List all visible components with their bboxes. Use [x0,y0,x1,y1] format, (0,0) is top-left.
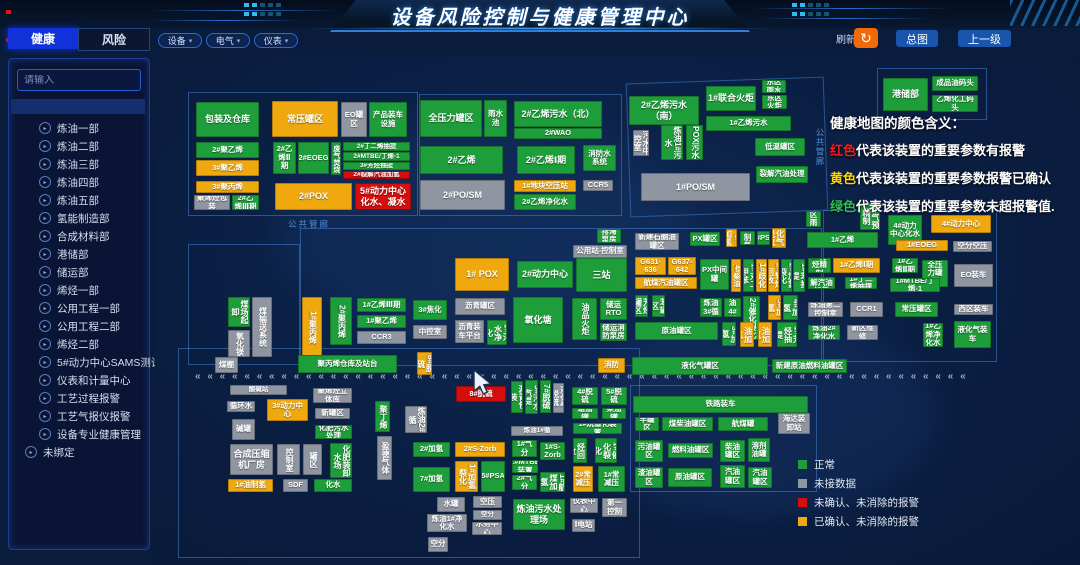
map-block[interactable]: 新建原油燃料油罐区 [772,359,847,373]
map-block[interactable]: 公用站-控制室 [573,245,627,258]
sidebar-item-label: 设备专业健康管理 [57,427,141,442]
map-block[interactable]: 1#EOEG [896,240,948,251]
color-description: 代表该装置的重要参数未超报警值. [856,199,1055,214]
mouse-cursor [472,370,496,396]
status-legend-row: 正常 [798,455,919,474]
map-block[interactable]: 3#动力中心 [267,399,308,421]
map-block[interactable]: CCR1 [850,302,883,317]
dropdown-1[interactable]: 电气▾ [206,33,250,48]
sidebar-item[interactable]: ▸炼油四部 [9,173,149,191]
map-block[interactable]: EO罐区 [341,102,367,137]
app-window: 设备风险控制与健康管理中心 健康风险 设备▾电气▾仪表▾ 刷新 ↻ 总图上一级 … [0,0,1080,565]
road-label: 公共管廊 [288,218,330,230]
map-block[interactable]: 3#污水汽提 [525,380,538,414]
map-block[interactable]: 1#丁二烯抽提 [845,277,877,289]
expand-icon[interactable]: ▸ [39,266,51,278]
expand-icon[interactable]: ▸ [39,338,51,350]
sidebar-item[interactable]: ▸储运部 [9,263,149,281]
map-block[interactable]: 2#加氢裂化 [781,259,792,292]
header-deco-dashes [792,12,829,16]
map-block[interactable]: 空分 [428,537,448,552]
map-block[interactable]: 1#加氢裂化 [455,461,478,492]
expand-icon[interactable]: ▸ [39,302,51,314]
map-block[interactable]: 1#MTBE/丁烯-1 [890,278,940,292]
map-block[interactable]: 低温罐区 [755,138,805,156]
map-block[interactable]: 1# POX [455,258,509,291]
map-block[interactable]: 东区雨水 [762,80,786,93]
map-block[interactable]: 1#乙烯 [807,232,878,248]
map-block[interactable]: 2#EOEG [298,142,329,174]
map-block[interactable]: 2#S-Zorb [455,442,505,457]
map-block[interactable]: 空分空压 [953,241,992,252]
sidebar-item-label: 公用工程二部 [57,319,120,334]
map-block[interactable]: 废气焚烧 [331,142,341,175]
map-block[interactable]: 蜡油罐 [572,408,598,419]
sidebar-item-label: 5#动力中心SAMS测试 [57,355,161,370]
map-block[interactable]: 2#轻烃回收 [768,259,779,292]
map-block[interactable]: 3#蜡油加氢 [740,322,754,347]
map-block[interactable]: 7#加氢 [413,467,450,492]
map-block[interactable]: 渣油罐区 [635,467,663,488]
map-block[interactable]: 1#聚丙烯 [302,297,322,357]
map-block[interactable]: 炼油1#污水 [661,125,683,160]
map-block[interactable]: 柴油罐 [602,408,626,419]
map-block[interactable]: 乙烯化工码头 [932,95,978,112]
map-block[interactable]: 原油罐区 [635,322,718,340]
map-block[interactable]: 1#对二甲苯 [743,259,754,292]
map-block[interactable]: 5#PSA [481,461,505,492]
expand-icon[interactable]: ▸ [39,176,51,188]
map-block[interactable]: 5#加氢 [768,295,781,320]
expand-icon[interactable]: ▸ [25,446,37,458]
map-block[interactable]: 1#联合火炬 [706,86,756,111]
map-block[interactable]: 酸碱站 [230,385,287,395]
color-legend-line: 绿色代表该装置的重要参数未超报警值. [830,196,1076,215]
map-block[interactable]: 1#PO/SM [641,173,750,201]
search-box[interactable] [17,69,141,91]
map-block[interactable]: 化肥污水处理 [315,425,352,439]
sidebar-item[interactable]: ▸公用工程二部 [9,317,149,335]
tab-health[interactable]: 健康 [8,28,78,49]
map-block[interactable]: 成品油码头 [932,76,978,91]
map-block[interactable]: Ⅰ电站 [572,519,595,532]
sidebar-item[interactable]: ▸合成材料部 [9,227,149,245]
map-block[interactable]: PX中间罐 [700,259,729,290]
sidebar-item[interactable]: ▸工艺气报仪报警 [9,407,149,425]
sidebar-item[interactable]: ▸氢能制造部 [9,209,149,227]
map-block[interactable]: 3#柴油加氢 [758,322,772,347]
map-block[interactable]: 罐区 [303,444,322,475]
org-tree: ▸炼油一部▸炼油二部▸炼油三部▸炼油四部▸炼油五部▸氢能制造部▸合成材料部▸港储… [9,119,149,461]
map-block[interactable]: 1#乙烯净化水 [923,323,943,347]
header-deco-line [150,20,300,21]
map-block[interactable]: 1#地块空压站 [514,180,576,192]
map-block[interactable]: 1#河水净化 [487,320,507,345]
expand-icon[interactable]: ▸ [39,356,51,368]
map-block[interactable]: 苯罐区 [652,295,665,317]
map-block[interactable]: 包装及仓库 [196,102,259,137]
map-block[interactable]: 液化气罐区 [632,357,768,375]
map-block[interactable]: 储运消防泵房 [600,323,627,341]
map-block[interactable]: 常压罐区 [272,101,338,137]
map-block[interactable]: 水罐 [437,497,465,512]
status-legend-row: 未确认、未消除的报警 [798,493,919,512]
map-block[interactable]: 1#常减压 [598,466,625,492]
map-block[interactable]: 化肥装卸水场 [330,443,352,478]
legend-swatch [798,479,807,488]
map-block[interactable]: G637-642 [668,257,696,275]
map-block[interactable]: 聚烯烃立体库 [313,388,352,403]
map-block[interactable]: 沥青装车平台 [455,320,484,343]
map-block[interactable]: 聚烯烃包装 [194,195,230,210]
map-block[interactable]: G631-636 [635,257,666,275]
map-block[interactable]: 化水 [314,479,352,492]
map-block[interactable]: 消防水系统 [583,145,616,171]
sidebar-item-label: 烯烃二部 [57,337,99,352]
map-block[interactable]: 三站 [576,258,627,292]
road-label: 公共管廊 [814,128,826,166]
sidebar-item[interactable]: ▸5#动力中心SAMS测试 [9,353,149,371]
map-block[interactable]: 溶剂油罐 [748,438,770,462]
expand-icon[interactable]: ▸ [39,122,51,134]
map-block[interactable]: 1#S-Zorb [540,442,565,460]
map-block[interactable]: 柴油罐区 [720,440,745,462]
map-block[interactable]: 炼油3#循 [700,298,722,317]
expand-icon[interactable]: ▸ [39,392,51,404]
map-block[interactable]: 1#PSA [757,231,770,245]
map-block[interactable]: 1#航煤加氢 [540,472,565,492]
color-description: 代表该装置的重要参数报警已确认 [856,171,1051,186]
color-meaning-legend: 健康地图的颜色含义： 红色代表该装置的重要参数有报警黄色代表该装置的重要参数报警… [830,112,1076,224]
map-block[interactable]: SDF [283,479,308,492]
color-keyword: 红色 [830,143,856,158]
map-block[interactable]: 炼油1#净化水 [427,514,467,532]
map-block[interactable]: 2#POX [275,183,352,210]
map-block[interactable]: 常压罐区 [895,302,938,317]
up-level-button[interactable]: 上一级 [958,30,1011,47]
sidebar-selected-band[interactable] [11,99,145,114]
refresh-button[interactable]: ↻ [854,28,878,48]
map-block[interactable]: 液化气脱硫 [553,383,564,413]
refresh-icon: ↻ [860,30,872,47]
map-block[interactable]: CCR5 [583,180,613,191]
sidebar-item[interactable]: ▸设备专业健康管理 [9,425,149,443]
header-deco-dashes [244,12,281,16]
map-block[interactable]: 空压 [473,496,502,508]
sidebar-item-label: 炼油一部 [57,121,99,136]
map-block[interactable]: 聚丙烯仓库及站台 [298,355,397,373]
map-block[interactable]: 1#气分 [512,440,537,457]
map-block[interactable]: 1#乙烯Ⅰ期 [833,258,880,273]
chevron-down-icon: ▾ [189,37,193,45]
map-block[interactable]: 1#烷基化装置 [573,423,622,434]
map-block[interactable]: 2#聚丙烯 [330,297,352,345]
map-block[interactable]: 铁路装车 [633,396,808,413]
legend-label: 未确认、未消除的报警 [814,495,919,510]
sidebar-item-label: 氢能制造部 [57,211,110,226]
sidebar-item[interactable]: ▸烯烃二部 [9,335,149,353]
map-block[interactable]: 7#脱硫 [540,380,551,413]
map-block[interactable]: 3#制氢 [740,231,755,245]
map-block[interactable]: 沥青罐区 [455,298,505,315]
map-block[interactable]: 2#WAO [514,128,602,139]
map-block[interactable]: 控制室 [277,444,300,475]
map-block[interactable]: 航煤汽油罐区 [635,277,697,289]
map-block[interactable]: 燃料油罐区 [668,443,713,458]
color-keyword: 绿色 [830,199,856,214]
map-block[interactable]: EO装车 [954,264,993,287]
map-block[interactable]: 4#加氢 [783,295,798,320]
map-block[interactable]: 雨水池 [484,100,507,137]
map-block[interactable]: 1#芳烃抽提 [777,322,797,347]
map-block[interactable]: 储运RTO [600,298,627,320]
sidebar-item-label: 港储部 [57,247,89,262]
legend-label: 已确认、未消除的报警 [814,514,919,529]
map-block[interactable]: 水务中心 [472,522,502,535]
sidebar-item-label: 炼油四部 [57,175,99,190]
map-block[interactable]: 新建石脑油罐区 [635,233,679,250]
header-corner-deco [1010,0,1080,26]
map-block[interactable]: 1#乙烯污水 [706,116,791,131]
map-block[interactable]: 聚丁烯 [375,401,390,432]
dropdown-2[interactable]: 仪表▾ [254,33,298,48]
map-block[interactable]: 产品装车设施 [369,102,407,137]
tab-risk[interactable]: 风险 [78,28,150,51]
search-input[interactable] [18,75,162,86]
map-block[interactable]: 污水中控室 [633,130,649,156]
sidebar: ▸炼油一部▸炼油二部▸炼油三部▸炼油四部▸炼油五部▸氢能制造部▸合成材料部▸港储… [8,58,150,550]
map-block[interactable]: 2#裂解汽油加氢 [343,171,410,179]
map-block[interactable]: 2#气分 [512,475,537,490]
expand-icon[interactable]: ▸ [39,410,51,422]
map-block[interactable]: 1#轻烃回收 [573,438,587,463]
map-block[interactable]: 2#PO/SM [420,180,505,210]
expand-icon[interactable]: ▸ [39,230,51,242]
map-block[interactable]: 原油罐区 [668,468,712,487]
map-block[interactable]: 航煤罐 [718,417,768,431]
map-block[interactable]: CCR3 [357,331,406,344]
sidebar-item-label: 仪表和计量中心 [57,373,131,388]
map-block[interactable]: 3#聚乙烯 [196,160,259,176]
sidebar-item-label: 公用工程一部 [57,301,120,316]
sidebar-item[interactable]: ▸炼油三部 [9,155,149,173]
map-block[interactable]: 煤场起卸 [228,297,250,327]
map-block[interactable]: 液化气装车 [954,321,991,348]
map-block[interactable]: 合成压缩机厂房 [230,444,273,475]
map-block[interactable]: 海达装卸站 [778,413,810,434]
map-block[interactable]: 2#乙烯Ⅰ期 [517,146,575,174]
map-block[interactable]: 3#加氢 [722,322,736,346]
map-block[interactable]: 5#脱硫 [601,387,627,405]
sidebar-item[interactable]: ▸炼油二部 [9,137,149,155]
color-keyword: 黄色 [830,171,856,186]
sidebar-item-unbound[interactable]: ▸未绑定 [9,443,149,461]
map-block[interactable]: 2#乙烯污水（南） [629,96,699,125]
color-legend-line: 黄色代表该装置的重要参数报警已确认 [830,168,1076,187]
map-block[interactable]: 仪表中心 [570,498,598,513]
map-block[interactable]: 全压力罐区 [420,100,482,137]
map-block[interactable]: 中控室 [413,325,447,339]
map-block[interactable]: 1#乙烯Ⅲ期 [357,298,406,312]
sidebar-item[interactable]: ▸炼油五部 [9,191,149,209]
map-block[interactable]: 消防 [598,358,625,373]
status-legend-row: 未接数据 [798,474,919,493]
map-block[interactable]: 1#MTBE装置 [512,460,538,473]
map-block[interactable]: 3#聚丙烯 [196,181,259,193]
map-block[interactable]: PX罐区 [690,232,720,246]
map-block[interactable]: 空分 [473,510,502,520]
header-deco-dashes [792,3,829,7]
map-block[interactable]: 2#乙烯净化水 [514,194,576,210]
map-block[interactable]: 5#动力中心 化水、凝水 [355,183,411,210]
map-block[interactable]: 西区装车 [954,304,993,315]
map-block[interactable]: 炼油2#净化水 [808,325,840,340]
map-block[interactable]: 循环水 [227,401,255,412]
map-block[interactable]: 3#芳烃抽提 [343,162,410,170]
expand-icon[interactable]: ▸ [39,428,51,440]
header-deco-line [750,8,950,9]
map-block[interactable]: 1#裂解汽油加氢 [808,277,835,289]
map-block[interactable]: 炼油第一控制室 [602,498,627,517]
map-block[interactable]: 炼油第二控制室 [808,302,843,317]
color-legend-line: 红色代表该装置的重要参数有报警 [830,140,1076,159]
map-block[interactable]: 2#加氢 [413,442,450,457]
map-block[interactable]: 2#乙烯 [420,146,503,174]
map-block[interactable]: 2#芳烃精制 [808,258,831,273]
chevron-down-icon: ▾ [285,37,289,45]
expand-icon[interactable]: ▸ [39,194,51,206]
map-block[interactable]: 2#乙烯Ⅱ期 [273,142,296,174]
header-deco-line [150,10,340,11]
map-block[interactable]: 1#液化气脱硫 [772,228,786,248]
header-deco-line [760,18,930,19]
sidebar-item-label: 炼油三部 [57,157,99,172]
map-block[interactable]: 新罐区 [315,408,350,419]
map-block[interactable]: 1#聚乙烯 [357,315,406,328]
expand-icon[interactable]: ▸ [39,284,51,296]
map-block[interactable]: 东区火炬 [762,95,787,109]
map-block[interactable]: 2#MTBE/丁烯-1 [343,152,410,161]
map-block[interactable]: 4#柴油 [731,259,741,292]
map-block[interactable]: 1#油制氢 [228,479,273,492]
color-legend-title: 健康地图的颜色含义： [830,112,1076,132]
map-block[interactable]: 碱罐 [232,419,255,440]
sidebar-item[interactable]: ▸港储部 [9,245,149,263]
map-block[interactable]: 半罐区 [635,417,659,431]
refresh-label: 刷新 [836,31,856,46]
map-block[interactable]: POX污水 [686,125,703,160]
map-block[interactable]: 3#焦化 [413,300,447,320]
map-block[interactable]: 2#丁二烯抽提 [343,142,410,151]
map-block[interactable]: 煤柴油罐区 [662,417,713,431]
sidebar-item-label: 工艺过程报警 [57,391,120,406]
legend-swatch [798,498,807,507]
map-block[interactable]: 2#动力中心 [517,261,573,288]
header-deco-dashes [244,3,281,7]
map-block[interactable]: 氧化塘 [513,297,563,343]
map-block[interactable]: 排海泵房 [597,229,621,243]
map-block[interactable]: 1#歧化 [756,259,767,292]
map-block[interactable]: 4#脱硫 [572,387,598,405]
map-block[interactable]: 污油罐区 [635,440,663,462]
sidebar-item[interactable]: ▸公用工程一部 [9,299,149,317]
chevron-down-icon: ▾ [237,37,241,45]
sidebar-item[interactable]: ▸仪表和计量中心 [9,371,149,389]
map-block[interactable]: 芳烃罐区 [635,295,648,317]
map-block[interactable]: 1#催化裂化 [595,438,617,463]
legend-label: 未接数据 [814,476,856,491]
map-block[interactable]: 炼油4#循 [724,298,741,317]
page-title: 设备风险控制与健康管理中心 [391,1,690,30]
sidebar-item[interactable]: ▸烯烃一部 [9,281,149,299]
map-block[interactable]: 煤棚 [215,357,238,373]
header-glow [300,27,780,30]
map-block[interactable]: 盈德气体 [377,436,392,480]
map-block[interactable]: 裂解汽油处理 [756,166,808,183]
map-block[interactable]: 炼油污水处理场 [513,499,565,530]
map-block[interactable]: 炼油1#循 [511,426,563,436]
map-block[interactable]: 新区维修 [847,325,878,340]
expand-icon[interactable]: ▸ [39,248,51,260]
status-legend-row: 已确认、未消除的报警 [798,512,919,531]
map-block[interactable]: 油品火炬 [572,298,597,340]
sidebar-item-label: 合成材料部 [57,229,110,244]
map-block[interactable]: 2#乙烯污水（北） [514,101,602,127]
expand-icon[interactable]: ▸ [39,158,51,170]
map-block[interactable]: 6#脱硫 [417,352,432,375]
map-block[interactable]: 2#聚乙烯 [196,142,259,158]
expand-icon[interactable]: ▸ [39,320,51,332]
sidebar-item-label: 烯烃一部 [57,283,99,298]
sidebar-item[interactable]: ▸炼油一部 [9,119,149,137]
overview-map-button[interactable]: 总图 [896,30,938,47]
status-legend: 正常未接数据未确认、未消除的报警已确认、未消除的报警 [798,455,919,531]
map-block[interactable]: 6#加氢 [726,229,737,247]
map-block[interactable]: 港储部 [883,78,928,111]
map-block[interactable]: 1#苯抽提 [793,259,805,292]
map-block[interactable]: 煤输送系统 [252,297,272,357]
sidebar-item[interactable]: ▸工艺过程报警 [9,389,149,407]
map-block[interactable]: 氧化镁 [228,330,250,357]
map-block[interactable]: 1#乙烯Ⅱ期 [892,258,918,273]
sidebar-item-label: 炼油五部 [57,193,99,208]
legend-swatch [798,460,807,469]
sidebar-item-label: 炼油二部 [57,139,99,154]
map-block[interactable]: 沥青包装 [511,381,523,413]
map-block[interactable]: 炼油2#循 [405,406,427,433]
expand-icon[interactable]: ▸ [39,374,51,386]
expand-icon[interactable]: ▸ [39,212,51,224]
map-block[interactable]: 2#乙烯Ⅲ期 [232,195,259,210]
map-block[interactable]: 汽油罐区 [748,467,772,488]
legend-label: 正常 [814,457,835,472]
map-block[interactable]: 汽油罐区 [720,465,745,488]
color-description: 代表该装置的重要参数有报警 [856,143,1025,158]
dropdown-0[interactable]: 设备▾ [158,33,202,48]
sidebar-item-label: 储运部 [57,265,89,280]
map-block[interactable]: 2#常减压 [573,466,593,492]
sidebar-item-label: 未绑定 [43,445,75,460]
legend-swatch [798,517,807,526]
map-block[interactable]: 西区雨水 [806,211,821,227]
expand-icon[interactable]: ▸ [39,140,51,152]
sidebar-item-label: 工艺气报仪报警 [57,409,131,424]
status-dot [6,10,11,14]
